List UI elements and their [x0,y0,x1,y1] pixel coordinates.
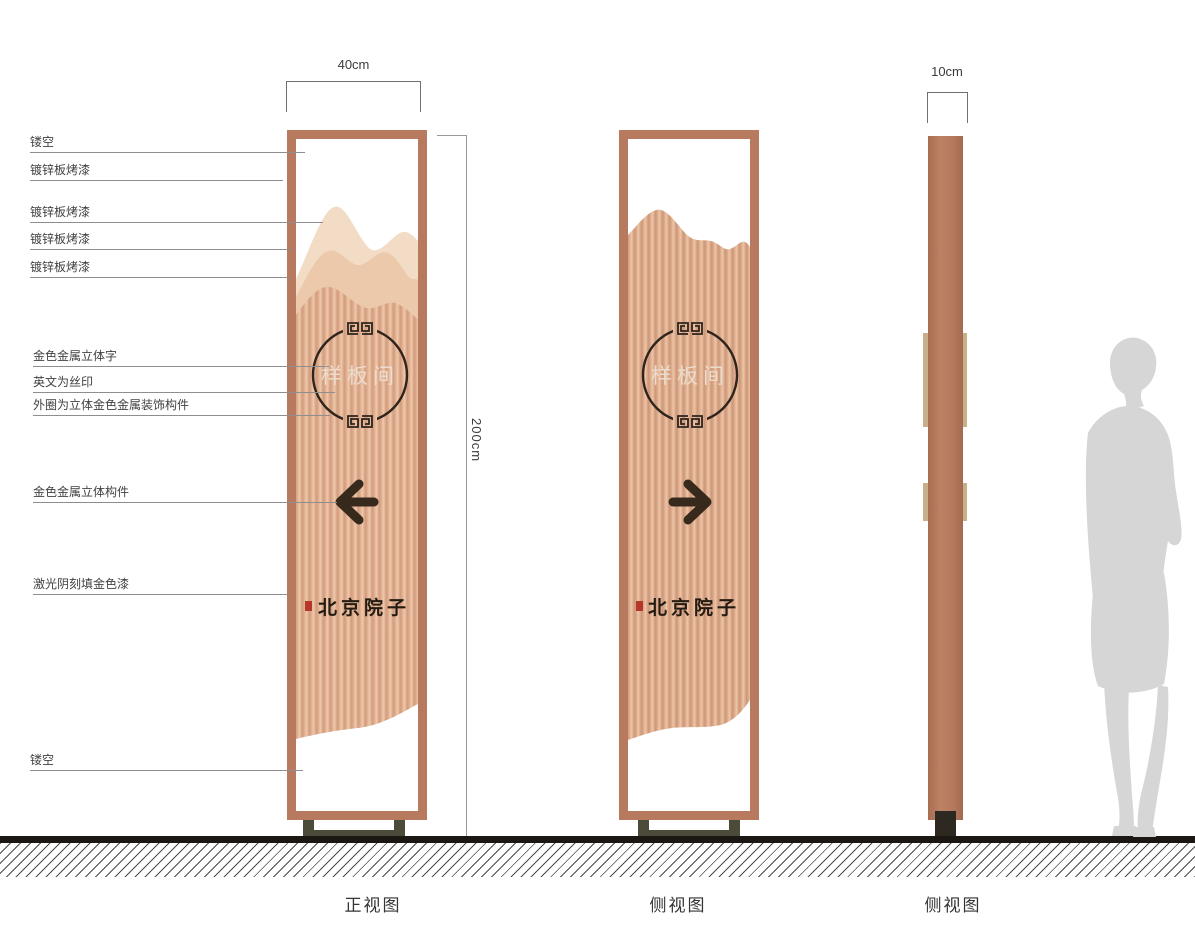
plate-text: 样板间 [651,365,729,388]
seal-stamp [636,601,643,611]
fret-ornament-top [343,321,377,334]
dimension-height: 200cm [469,418,484,462]
panel-brushed-copper [628,210,750,740]
fret-ornament-bottom [343,416,377,429]
callout-line [33,594,289,595]
callout-line [30,770,303,771]
side-profile-panel [928,136,963,820]
fret-ornament-bottom [673,416,707,429]
dimension-side-width-bracket [927,92,968,123]
callout-label-cutout-bottom: 镂空 [30,753,54,767]
brand-logo-text: 北京院子 [648,596,740,619]
dimension-front-width: 40cm [287,57,420,72]
callout-line [30,277,291,278]
fret-ornament-top [673,321,707,334]
callout-line [30,222,323,223]
ground-line [0,836,1195,843]
brand-logo-text: 北京院子 [318,596,410,619]
callout-label-galvanized-1: 镀锌板烤漆 [30,163,90,177]
side-sign-panel: 样板间 北京院子 [628,139,750,811]
seal-stamp [305,601,312,611]
side-sign-base [638,820,740,837]
callout-line [30,152,305,153]
callout-label-outer-ring: 外圈为立体金色金属装饰构件 [33,398,189,412]
callout-label-gold-component: 金色金属立体构件 [33,485,129,499]
ground-hatch [0,843,1195,877]
callout-label-silkprint-english: 英文为丝印 [33,375,93,389]
callout-line [33,366,329,367]
callout-label-laser-engrave: 激光阴刻填金色漆 [33,577,129,591]
callout-label-galvanized-2: 镀锌板烤漆 [30,205,90,219]
plate-text: 样板间 [321,365,399,388]
side-profile-foot [935,811,956,839]
caption-side-view-1: 侧视图 [628,891,728,916]
front-sign-panel: 样板间 北京院子 [296,139,418,811]
signage-spec-sheet: 40cm 10cm 200cm [0,0,1195,927]
callout-line [33,392,335,393]
callout-line [30,249,291,250]
caption-front-view: 正视图 [323,891,423,916]
callout-line [30,180,283,181]
dimension-front-width-bracket [286,81,421,112]
dimension-height-tick [437,135,466,136]
front-sign-base [303,820,405,837]
callout-label-cutout-top: 镂空 [30,135,54,149]
dimension-side-width: 10cm [928,64,966,79]
callout-label-gold-letters: 金色金属立体字 [33,349,117,363]
callout-line [33,502,337,503]
caption-side-view-2: 侧视图 [903,891,1003,916]
human-silhouette [1030,333,1195,838]
callout-label-galvanized-4: 镀锌板烤漆 [30,260,90,274]
callout-label-galvanized-3: 镀锌板烤漆 [30,232,90,246]
dimension-height-line [466,135,467,838]
callout-line [33,415,330,416]
